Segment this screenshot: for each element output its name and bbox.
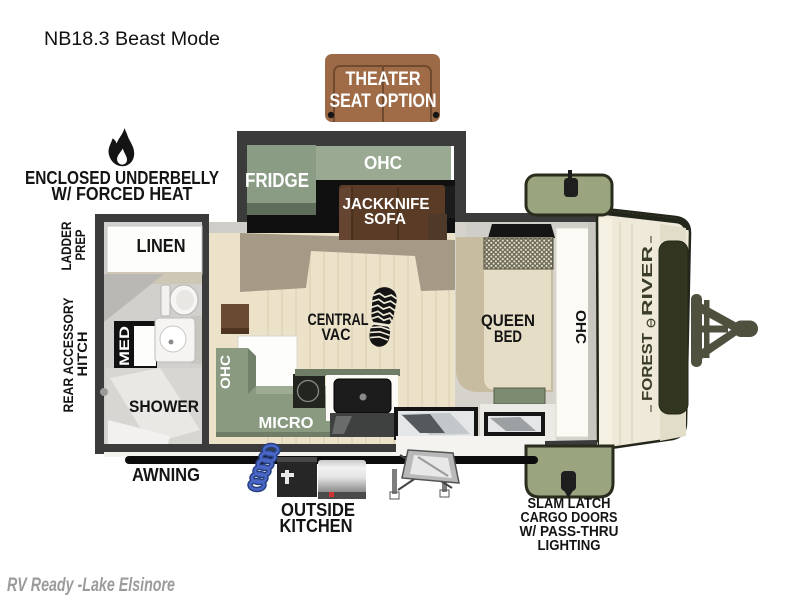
svg-text:AWNING: AWNING — [132, 465, 200, 485]
svg-text:HITCH: HITCH — [75, 332, 90, 377]
svg-text:FRIDGE: FRIDGE — [245, 170, 309, 192]
svg-text:OHC: OHC — [217, 355, 233, 389]
svg-text:MED: MED — [116, 326, 132, 366]
svg-text:OHC: OHC — [364, 153, 402, 173]
svg-text:RV Ready -Lake Elsinore: RV Ready -Lake Elsinore — [7, 575, 175, 596]
svg-text:FOREST: FOREST — [640, 333, 656, 401]
svg-text:PREP: PREP — [73, 230, 88, 261]
svg-text:KITCHEN: KITCHEN — [280, 516, 353, 536]
svg-text:LIGHTING: LIGHTING — [538, 538, 601, 554]
svg-text:MICRO: MICRO — [259, 415, 314, 432]
svg-text:OHC: OHC — [572, 310, 589, 344]
svg-text:VAC: VAC — [322, 325, 351, 344]
svg-text:LADDER: LADDER — [59, 221, 74, 270]
svg-text:NB18.3 Beast Mode: NB18.3 Beast Mode — [44, 29, 220, 50]
svg-text:THEATER: THEATER — [346, 68, 421, 90]
svg-text:SOFA: SOFA — [364, 211, 406, 228]
svg-text:SEAT OPTION: SEAT OPTION — [330, 90, 437, 112]
svg-text:W/ FORCED HEAT: W/ FORCED HEAT — [52, 184, 193, 204]
svg-text:REAR ACCESSORY: REAR ACCESSORY — [61, 298, 76, 413]
svg-text:SHOWER: SHOWER — [129, 397, 199, 416]
svg-text:BED: BED — [494, 327, 522, 346]
svg-text:LINEN: LINEN — [137, 236, 186, 256]
svg-text:RIVER: RIVER — [640, 245, 656, 316]
